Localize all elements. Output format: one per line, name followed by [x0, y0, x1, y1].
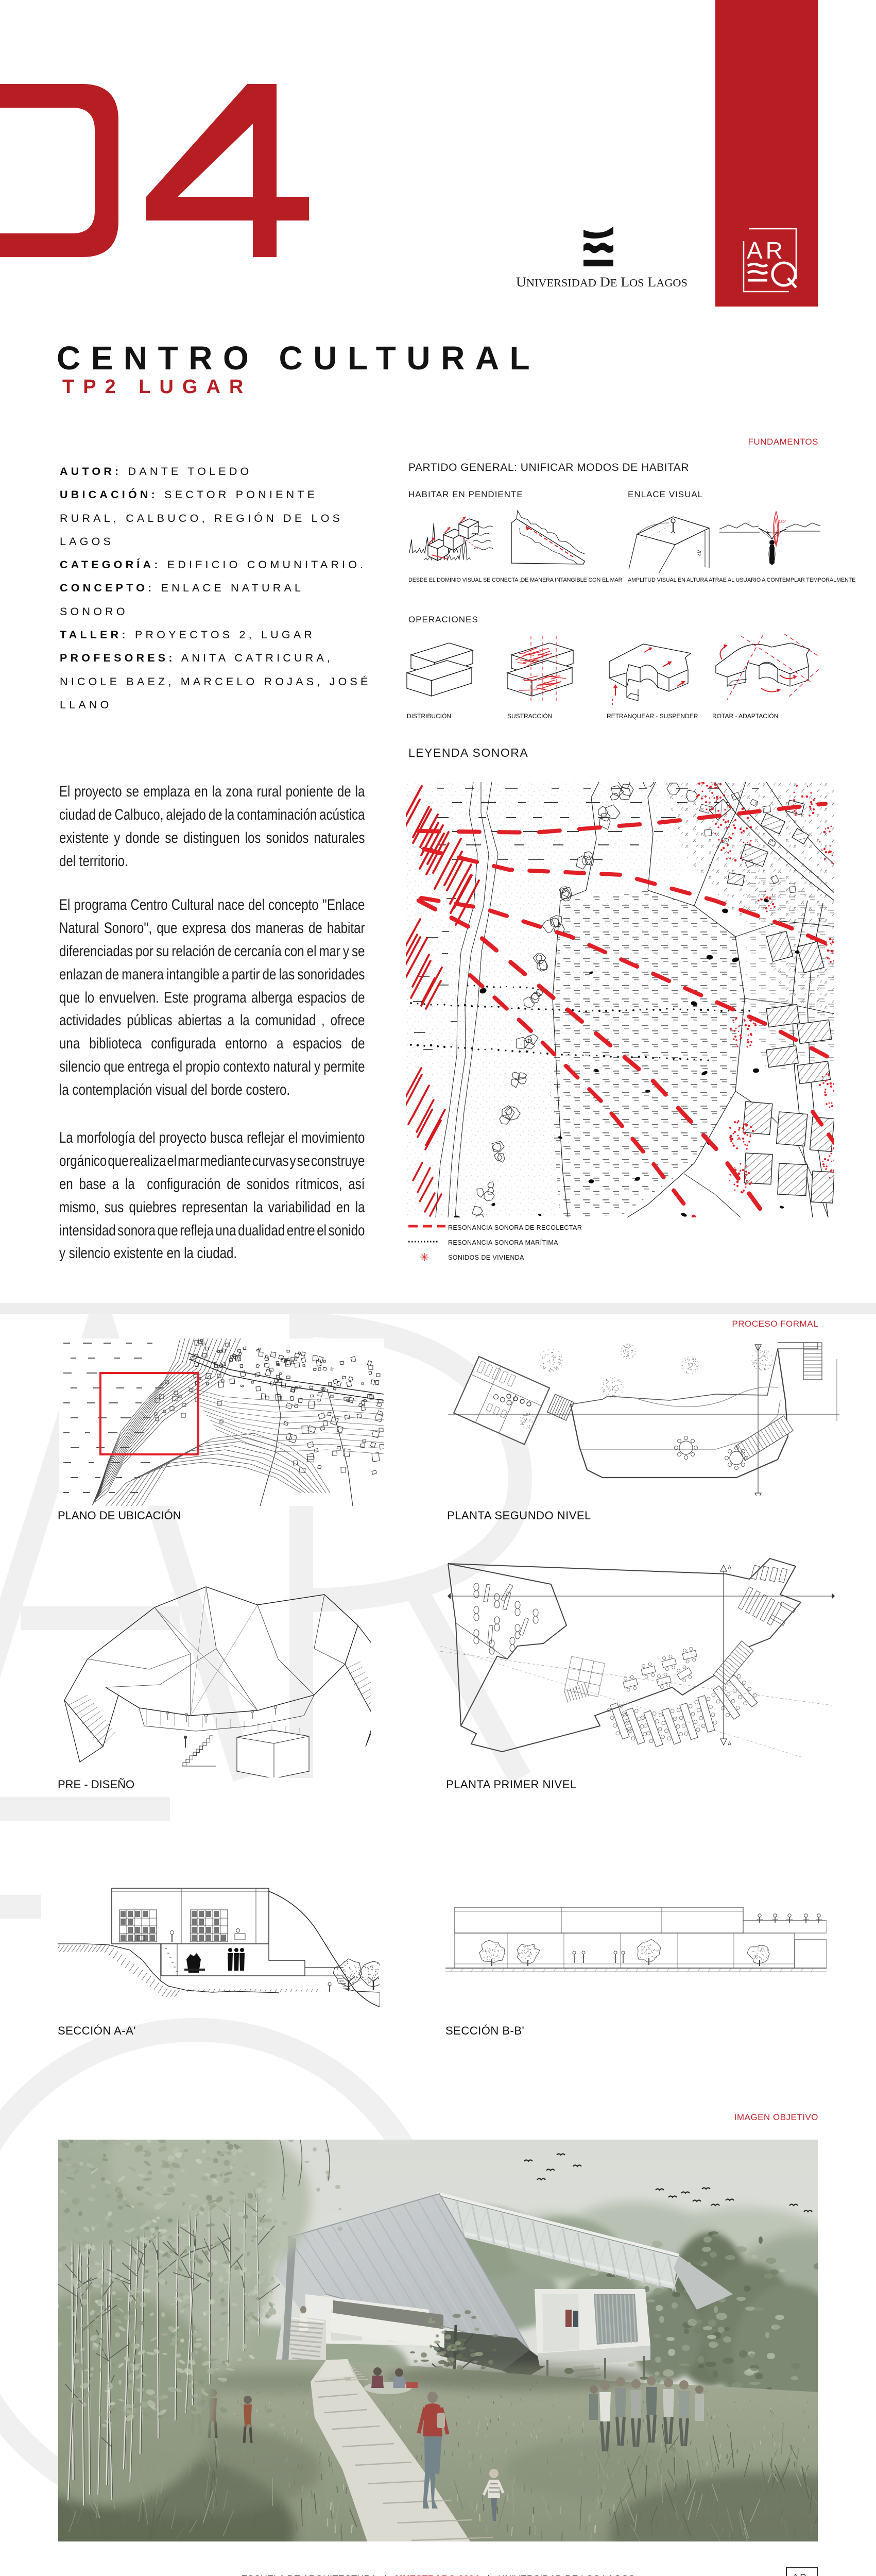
svg-text:A: A	[728, 1741, 732, 1747]
svg-text:AR: AR	[793, 2572, 808, 2576]
svg-text:AR: AR	[747, 237, 786, 264]
svg-text:180°: 180°	[779, 520, 786, 524]
svg-text:4M: 4M	[697, 549, 702, 556]
svg-text:✳: ✳	[420, 1251, 429, 1264]
svg-text:A': A'	[728, 1565, 732, 1571]
